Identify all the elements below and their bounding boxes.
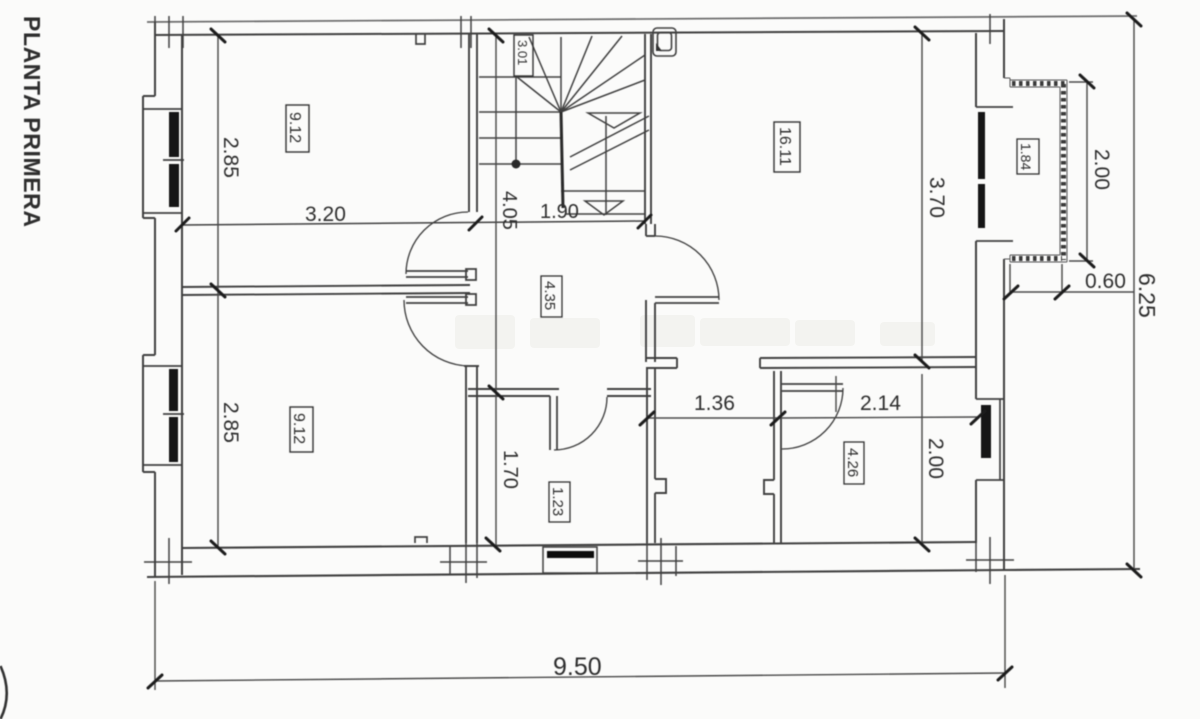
svg-text:4.05: 4.05 <box>498 191 520 230</box>
svg-text:1.84: 1.84 <box>1018 143 1034 170</box>
svg-text:1.90: 1.90 <box>540 201 579 223</box>
svg-text:16.11: 16.11 <box>776 127 793 166</box>
svg-text:1.36: 1.36 <box>694 392 735 415</box>
svg-text:9.50: 9.50 <box>553 653 602 681</box>
svg-text:0.60: 0.60 <box>1085 270 1126 293</box>
svg-text:2.85: 2.85 <box>219 402 242 443</box>
svg-text:4.35: 4.35 <box>541 281 558 310</box>
svg-text:9.12: 9.12 <box>290 413 307 444</box>
svg-text:1.23: 1.23 <box>549 487 566 516</box>
svg-text:3.70: 3.70 <box>925 177 948 218</box>
svg-text:2.85: 2.85 <box>219 137 242 178</box>
svg-text:9.12: 9.12 <box>286 112 303 143</box>
svg-text:2.00: 2.00 <box>1090 149 1113 190</box>
svg-text:1.70: 1.70 <box>499 450 521 489</box>
svg-text:PLANTA PRIMERA: PLANTA PRIMERA <box>19 16 45 228</box>
svg-text:3.01: 3.01 <box>515 40 530 65</box>
svg-text:6.25: 6.25 <box>1134 273 1160 318</box>
svg-text:2.14: 2.14 <box>860 392 901 415</box>
svg-text:3.20: 3.20 <box>305 203 346 226</box>
svg-text:2.00: 2.00 <box>924 438 947 479</box>
svg-text:4.26: 4.26 <box>844 448 861 477</box>
